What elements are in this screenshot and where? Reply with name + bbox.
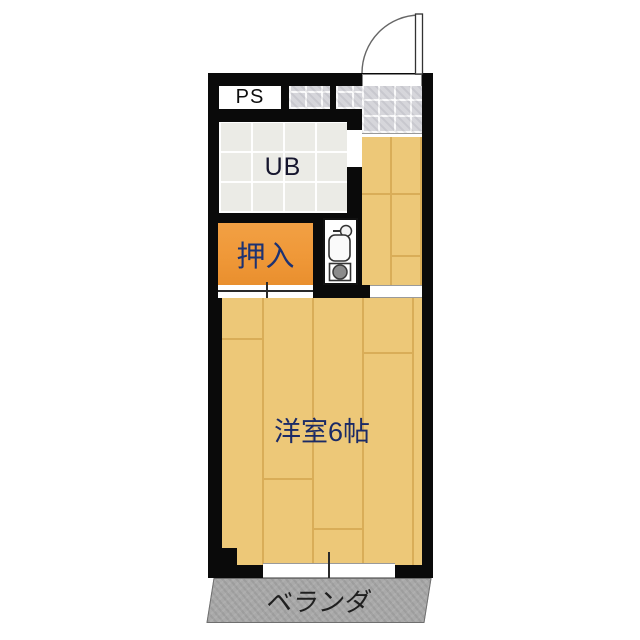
kitchen-unit-icon	[325, 220, 356, 283]
veranda: ベランダ	[206, 578, 431, 623]
floor-seam	[312, 528, 362, 530]
room-opening	[370, 285, 422, 298]
burner-icon	[333, 265, 347, 279]
floor-plan-canvas: PS UB 押入	[0, 0, 640, 640]
closet-room: 押入	[218, 223, 313, 285]
closet-label: 押入	[236, 233, 294, 275]
kitchen-unit	[323, 218, 358, 285]
door-swing-arc-icon	[362, 15, 419, 73]
window-center-tick	[328, 552, 330, 580]
entry-door-icon	[355, 8, 435, 88]
main-room-label-wrap: 洋室6帖	[222, 412, 422, 446]
main-room-label: 洋室6帖	[274, 410, 370, 449]
pipe-space-box: PS	[219, 86, 281, 109]
unit-bath-label: UB	[265, 153, 302, 182]
sink-icon	[329, 235, 350, 261]
unit-bath-room: UB	[219, 122, 347, 213]
kitchen-corridor-floor	[362, 137, 422, 285]
tile-niche	[289, 86, 330, 109]
floor-seam	[362, 193, 422, 195]
unit-bath-door-opening	[347, 130, 362, 167]
genkan-tile	[362, 86, 422, 133]
floor-seam	[392, 255, 422, 257]
wall-step-block	[208, 548, 237, 578]
floor-seam	[222, 338, 262, 340]
genkan-tile-upper	[336, 86, 362, 109]
pipe-space-label: PS	[236, 86, 265, 109]
door-leaf-icon	[416, 14, 423, 74]
floor-seam	[262, 478, 312, 480]
veranda-label: ベランダ	[264, 582, 374, 619]
floor-seam	[362, 352, 412, 354]
